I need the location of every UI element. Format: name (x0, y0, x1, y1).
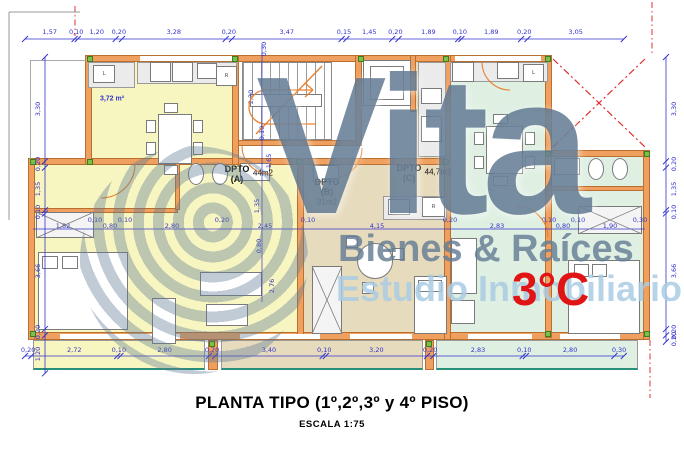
dim-label-top: 0,20 (222, 28, 236, 36)
dim-label-inner: 0,10 (118, 216, 132, 224)
plan-label: (C) (403, 173, 416, 183)
dim-label-inner: 0,20 (443, 216, 457, 224)
fixture (193, 142, 203, 155)
dim-label-inner: 0,10 (301, 216, 315, 224)
dim-label-bottom: 2,80 (157, 346, 171, 354)
dim-label-inner: 2,83 (490, 222, 504, 230)
fixture (418, 280, 442, 292)
plan-label: (A) (231, 174, 244, 184)
fixture (370, 66, 404, 100)
dim-label-bottom: 0,20 (423, 346, 437, 354)
fixture (474, 132, 484, 145)
plan-label: (B) (321, 187, 334, 197)
fixture (486, 126, 523, 174)
floor-plan-canvas: LRRL3,72 m²DPTO(A)44m2DPTO(B)31m2DPTO(C)… (0, 0, 684, 450)
fixture (206, 304, 248, 326)
plan-label: 44,7m2 (425, 168, 452, 177)
dim-label-inner: 0,80 (255, 239, 263, 253)
fixture (493, 176, 508, 186)
fixture-letter: L (532, 70, 535, 76)
plan-label: 31m2 (317, 198, 337, 207)
dim-label-inner: 0,80 (556, 222, 570, 230)
column-marker (87, 159, 93, 165)
fixture (357, 243, 393, 279)
dim-label-inner: 0,10 (258, 126, 266, 140)
fixture (451, 238, 477, 294)
dim-label-inner: 2,45 (258, 222, 272, 230)
column-marker (644, 331, 650, 337)
fixture (164, 103, 178, 113)
fixture (152, 298, 176, 344)
fixture (388, 199, 410, 215)
dim-label-top: 0,15 (337, 28, 351, 36)
dim-label-right: 3,30 (670, 102, 678, 116)
column-marker (545, 151, 551, 157)
column-marker (296, 159, 302, 165)
fixture (588, 158, 604, 180)
dim-label-top: 1,89 (484, 28, 498, 36)
plan-label: DPTO (225, 164, 250, 174)
fixture (42, 256, 58, 269)
dim-label-inner: 1,35 (253, 199, 261, 213)
fixture (146, 142, 156, 155)
dim-label-inner: 2,20 (247, 90, 255, 104)
dim-label-top: 1,89 (421, 28, 435, 36)
column-marker (443, 159, 449, 165)
plan-label: 3,72 m² (100, 96, 124, 103)
dim-label-bottom: 3,40 (262, 346, 276, 354)
wall-segment (297, 158, 304, 340)
fixture: L (523, 64, 544, 82)
window-opening (30, 60, 86, 61)
window-opening (455, 56, 541, 61)
fixture (150, 62, 171, 82)
dim-label-bottom: 2,83 (471, 346, 485, 354)
dim-label-top: 0,10 (69, 28, 83, 36)
fixture (451, 300, 475, 324)
plan-label: DPTO (397, 163, 422, 173)
closet-xbox (312, 266, 342, 334)
dim-label-left: 1,35 (34, 182, 42, 196)
dim-label-inner: 0,30 (260, 42, 268, 56)
window-opening (560, 334, 620, 339)
window-opening (350, 334, 412, 339)
wall-segment (643, 150, 650, 340)
plan-label: 44m2 (253, 169, 273, 178)
dim-label-top: 1,57 (43, 28, 57, 36)
dim-label-inner: 0,10 (571, 216, 585, 224)
fixture (158, 114, 192, 164)
column-marker (545, 56, 551, 62)
dim-label-left: 1,20 (34, 347, 42, 361)
fixture (497, 62, 519, 79)
fixture (525, 132, 535, 145)
fixture (188, 163, 204, 185)
fixture (62, 256, 78, 269)
fixture-letter: R (225, 73, 229, 79)
plan-label: DPTO (315, 177, 340, 187)
fixture (452, 62, 474, 82)
window-opening (468, 334, 532, 339)
plan-scale: ESCALA 1:75 (0, 419, 664, 430)
fixture (164, 165, 178, 175)
column-marker (232, 56, 238, 62)
dim-label-left: 0,10 (34, 205, 42, 219)
dim-label-inner: 0,20 (215, 216, 229, 224)
dim-label-right: 0,20 (670, 331, 678, 345)
dim-label-bottom: 0,10 (317, 346, 331, 354)
column-marker (87, 56, 93, 62)
dim-label-top: 3,28 (167, 28, 181, 36)
fixture: R (216, 66, 237, 86)
dim-label-top: 0,20 (517, 28, 531, 36)
window-opening (240, 334, 320, 339)
dim-label-left: 0,20 (34, 157, 42, 171)
fixture (392, 248, 404, 260)
dim-label-left: 3,66 (34, 264, 42, 278)
fixture (525, 156, 535, 169)
dim-label-inner: 1,65 (265, 154, 273, 168)
dim-label-top: 0,20 (388, 28, 402, 36)
window-opening (140, 56, 232, 61)
fixture: L (93, 65, 115, 83)
dim-label-top: 1,20 (89, 28, 103, 36)
dim-label-right: 0,10 (670, 205, 678, 219)
fixture (200, 272, 262, 296)
room-fill (436, 340, 638, 370)
wall-segment (545, 150, 650, 157)
wall-segment (548, 186, 648, 191)
fixture (362, 282, 374, 294)
dim-label-right: 0,20 (670, 157, 678, 171)
fixture (421, 116, 442, 142)
dim-label-right: 1,35 (670, 182, 678, 196)
wall-segment (237, 140, 362, 146)
fixture (193, 120, 203, 133)
fixture (592, 264, 607, 277)
fixture (172, 62, 193, 82)
dim-label-top: 3,47 (280, 28, 294, 36)
floorplan-sheet: LRRL3,72 m²DPTO(A)44m2DPTO(B)31m2DPTO(C)… (0, 0, 684, 450)
wall-segment (355, 55, 362, 146)
dim-label-bottom: 0,20 (205, 346, 219, 354)
dim-label-inner: 0,10 (542, 216, 556, 224)
column-marker (644, 151, 650, 157)
fixture (474, 156, 484, 169)
column-marker (443, 56, 449, 62)
room-fill (33, 340, 205, 370)
fixture (197, 63, 217, 79)
fixture (554, 158, 580, 175)
dim-label-top: 3,05 (568, 28, 582, 36)
fixture (493, 114, 508, 124)
dim-label-top: 1,45 (362, 28, 376, 36)
window-opening (30, 60, 31, 160)
dim-label-bottom: 0,10 (517, 346, 531, 354)
fixture (612, 158, 628, 180)
dim-label-bottom: 0,10 (112, 346, 126, 354)
column-marker (545, 331, 551, 337)
dim-label-bottom: 3,20 (369, 346, 383, 354)
dim-label-bottom: 2,72 (67, 346, 81, 354)
dim-label-bottom: 2,80 (563, 346, 577, 354)
fixture (250, 94, 322, 107)
fixture (421, 88, 442, 104)
fixture: R (422, 197, 445, 217)
dim-label-inner: 2,76 (268, 279, 276, 293)
dim-label-inner: 0,10 (88, 216, 102, 224)
dim-label-right: 3,66 (670, 264, 678, 278)
dim-label-left: 3,30 (34, 102, 42, 116)
kitchen-counter (418, 62, 446, 157)
dim-label-inner: 0,30 (633, 216, 647, 224)
dim-label-inner: 1,82 (56, 222, 70, 230)
fixture-letter: L (102, 71, 105, 77)
dim-label-left: 0,20 (34, 325, 42, 339)
plan-title: PLANTA TIPO (1º,2º,3º y 4º PISO) (0, 393, 664, 413)
fixture-letter: R (432, 204, 436, 210)
fixture (574, 264, 589, 277)
dim-label-top: 0,10 (453, 28, 467, 36)
dim-label-inner: 0,80 (103, 222, 117, 230)
dim-label-top: 0,20 (112, 28, 126, 36)
dim-label-inner: 2,80 (165, 222, 179, 230)
column-marker (358, 56, 364, 62)
room-fill (221, 340, 423, 370)
wall-segment (545, 55, 552, 338)
dim-label-bottom: 0,30 (612, 346, 626, 354)
dim-label-inner: 4,15 (370, 222, 384, 230)
dim-label-inner: 1,90 (603, 222, 617, 230)
fixture (346, 236, 358, 248)
fixture (146, 120, 156, 133)
